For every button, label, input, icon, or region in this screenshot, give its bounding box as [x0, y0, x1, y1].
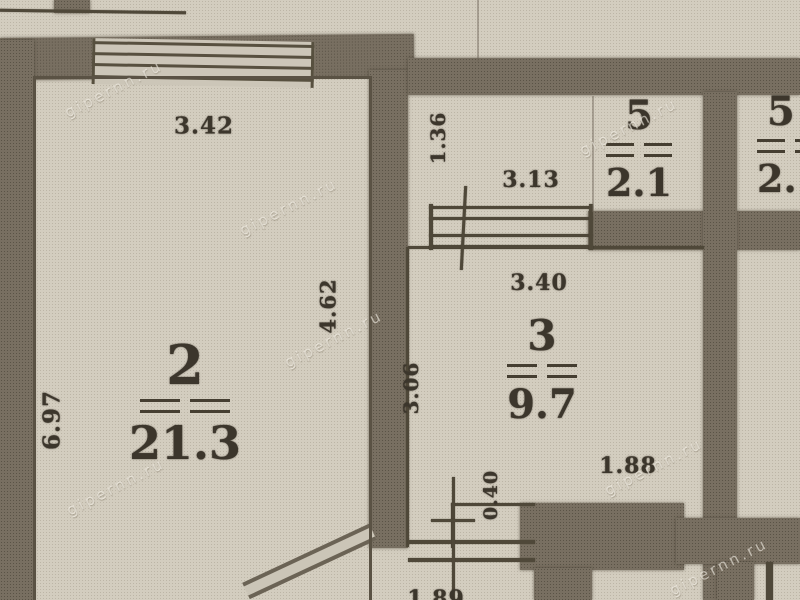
room5b-area: 2.	[757, 159, 800, 199]
room3-number: 3	[492, 315, 592, 357]
stray-line-top	[0, 9, 186, 15]
partition-line-icon	[429, 234, 593, 237]
dimension-bottom-partial: 1.89	[407, 586, 465, 600]
partition-line-icon	[429, 217, 593, 220]
paper-crease	[477, 0, 479, 62]
room5b-separator-icon	[757, 139, 800, 153]
room3-separator-icon	[492, 364, 592, 378]
dimension-hall-width: 3.13	[502, 167, 560, 193]
room2-label: 2 21.3	[110, 338, 260, 467]
wall-top-right	[408, 58, 800, 95]
window-line-icon	[92, 52, 314, 59]
wall-bottom-right-vertical	[717, 562, 754, 600]
dimension-room2-height: 6.97	[39, 390, 66, 450]
tick-mark-040	[431, 519, 475, 522]
wall-mid-right	[588, 211, 800, 250]
dimension-room2-right: 4.62	[316, 278, 341, 333]
wall-right-thin	[766, 562, 773, 600]
room2-area: 21.3	[110, 419, 260, 467]
room5b-label: 5 2.	[757, 92, 800, 199]
room5-number: 5	[594, 96, 684, 136]
dimension-room3-width: 3.40	[510, 270, 568, 296]
room2-number: 2	[110, 338, 260, 392]
partition-line-icon	[429, 206, 593, 209]
extension-line-bottom	[452, 477, 455, 600]
dimension-room2-width: 3.42	[174, 113, 234, 140]
room5-label: 5 2.1	[594, 96, 684, 203]
hall-partition-icon	[429, 204, 593, 250]
room3-bottom-line-1	[408, 540, 535, 544]
room5b-number: 5	[757, 92, 800, 132]
window-line-icon	[92, 41, 314, 48]
partition-end-icon	[429, 204, 433, 250]
dimension-notch-height: 0.40	[480, 470, 502, 520]
room2-separator-icon	[110, 399, 260, 413]
floor-plan-scan: 3.42 6.97 4.62 1.36 3.13 3.40 3.06 0.40 …	[0, 0, 800, 600]
dimension-hall-height: 1.36	[426, 112, 450, 165]
wall-bottom-chunk-lower	[534, 568, 592, 600]
room3-bottom-line-2	[408, 558, 535, 562]
wall-room2-right	[369, 70, 408, 548]
room3-area: 9.7	[492, 384, 592, 426]
room5-separator-icon	[594, 143, 684, 157]
wall-bottom-right-band	[676, 518, 800, 564]
wall-left-outer	[0, 40, 34, 600]
partition-line-icon	[429, 245, 593, 248]
room3-label: 3 9.7	[492, 315, 592, 426]
dimension-notch-width: 1.88	[599, 453, 657, 479]
dimension-room3-height: 3.06	[399, 362, 423, 415]
wall-bottom-chunk	[520, 503, 684, 570]
room5-area: 2.1	[594, 163, 684, 203]
window-line-icon	[92, 63, 314, 70]
